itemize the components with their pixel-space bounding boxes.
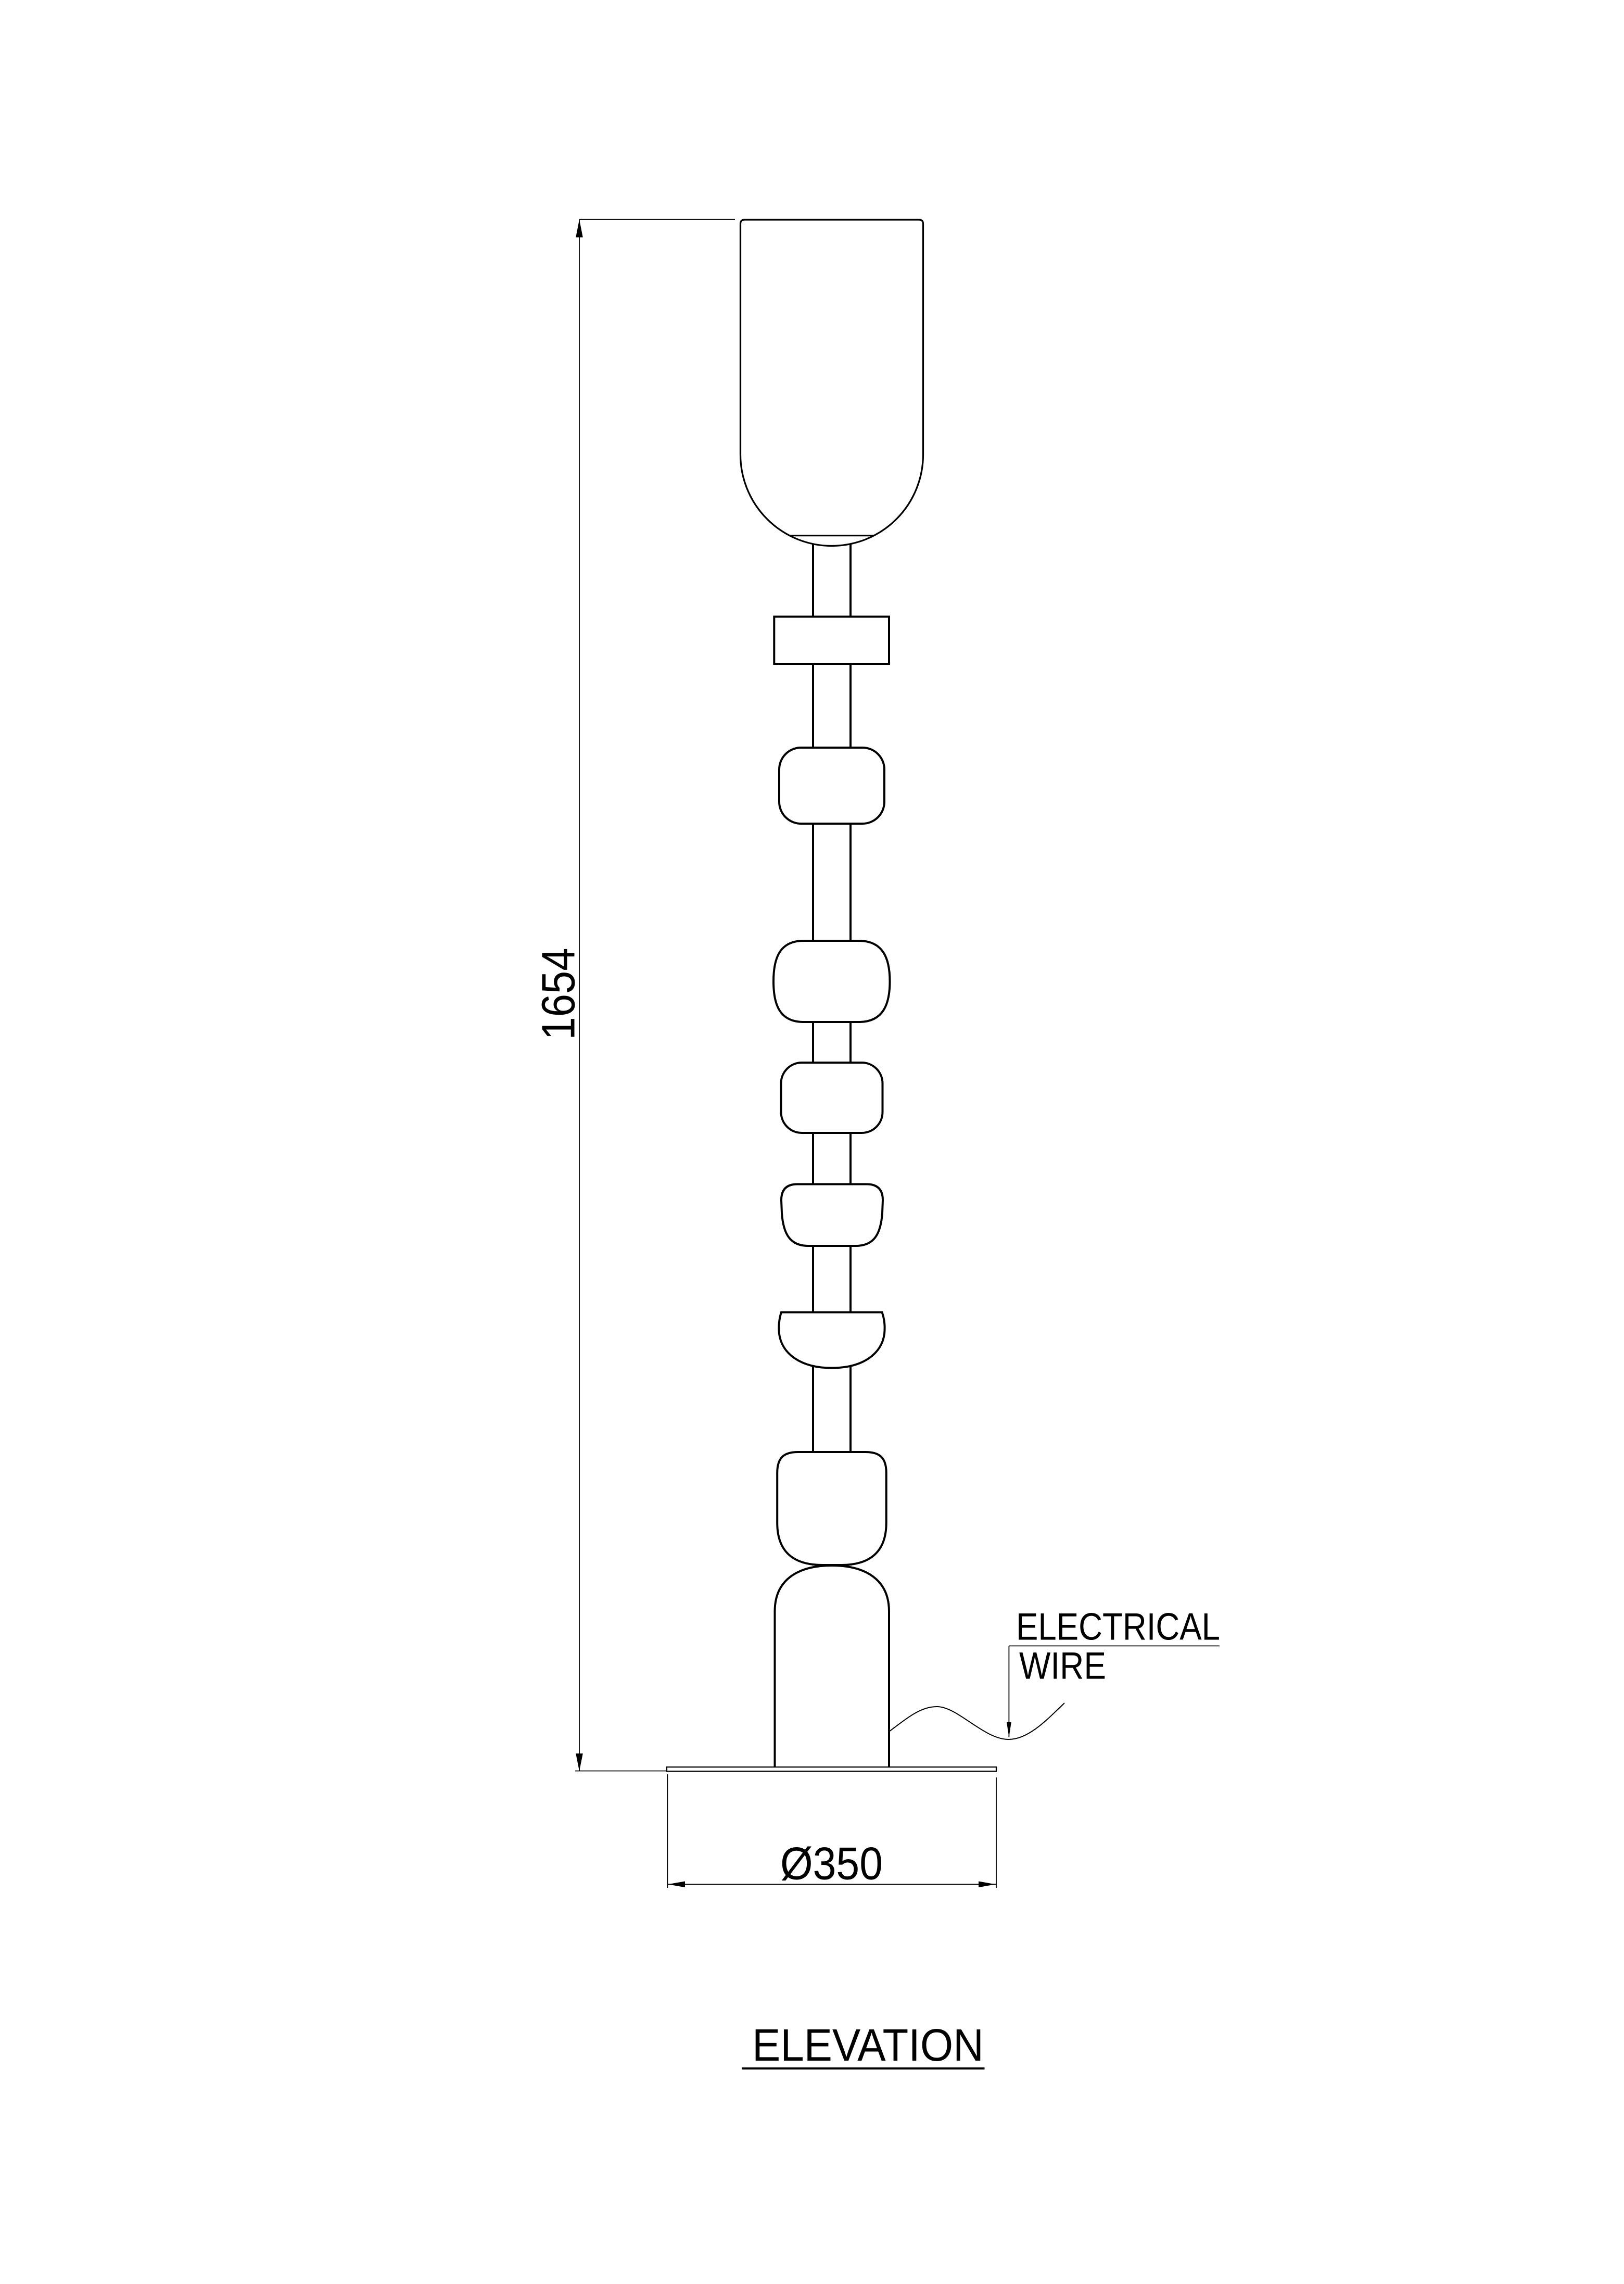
svg-text:ELEVATION: ELEVATION: [752, 2020, 984, 2071]
svg-text:Ø350: Ø350: [780, 1838, 883, 1889]
svg-text:1654: 1654: [533, 948, 585, 1040]
svg-text:ELECTRICAL: ELECTRICAL: [1016, 1605, 1220, 1648]
svg-text:WIRE: WIRE: [1019, 1644, 1106, 1687]
